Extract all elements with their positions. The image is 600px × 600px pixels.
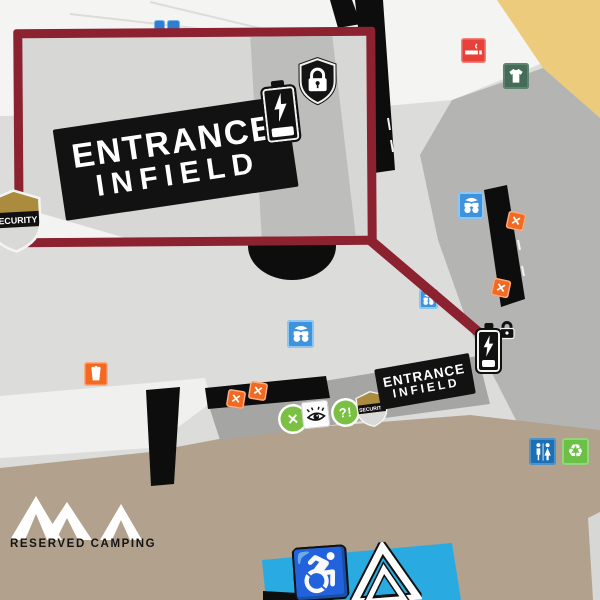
lightning-bolt-glyph — [267, 90, 293, 124]
gate-charging-lockers — [473, 318, 521, 378]
x-glyph: ✕ — [230, 391, 242, 406]
binoculars-glyph — [421, 292, 436, 307]
charging-station-icon — [475, 328, 502, 374]
binoculars-glyph — [290, 323, 312, 345]
recycling-icon: ♻ — [562, 438, 589, 465]
restroom-figures-glyph — [532, 441, 554, 463]
reserved-camping-label: RESERVED CAMPING — [10, 538, 156, 550]
food-vendor-icon: ✕ — [505, 210, 526, 231]
cigarette-glyph — [463, 40, 484, 61]
lockers-shield-icon — [296, 57, 338, 105]
callout-box: ENTRANCE INFIELD — [13, 27, 377, 248]
beer-stand-icon — [84, 362, 108, 386]
wheelchair-glyph: ♿ — [290, 545, 351, 600]
charging-station-icon-large — [260, 84, 302, 146]
security-shield: SECURITY — [0, 186, 58, 256]
recycle-glyph: ♻ — [567, 441, 583, 462]
viewing-point-icon-small — [419, 289, 438, 309]
x-glyph: ✕ — [510, 213, 523, 229]
food-vendor-icon: ✕ — [248, 381, 269, 402]
lost-and-found-eye-icon — [301, 400, 331, 430]
battery-bar — [482, 360, 495, 367]
merch-tshirt-icon — [503, 63, 529, 89]
security-badge-large: SECURITY — [0, 186, 58, 256]
festival-map: ✕ ✕ ✕ ✕ ✕ — [0, 0, 600, 600]
battery-bar — [271, 126, 294, 137]
accessible-camping-tent-icon — [346, 540, 422, 600]
food-vendor-icon: ✕ — [226, 389, 247, 410]
food-vendor-icon: ✕ — [490, 277, 511, 298]
binoculars-glyph — [461, 195, 482, 216]
lightning-bolt-glyph — [480, 334, 497, 358]
x-glyph: ✕ — [495, 280, 508, 296]
help-glyph: ?! — [338, 404, 353, 420]
x-glyph: ✕ — [286, 410, 299, 428]
x-glyph: ✕ — [252, 383, 264, 398]
smoking-area-icon — [461, 38, 486, 63]
wheelchair-icon: ♿ — [290, 544, 351, 600]
restroom-icon — [529, 438, 556, 465]
tshirt-glyph — [506, 66, 526, 86]
viewing-point-icon — [287, 320, 314, 348]
camping-tents-icon — [8, 490, 143, 542]
eye-glyph — [303, 402, 327, 426]
viewing-point-icon — [458, 192, 484, 219]
beer-cup-glyph — [87, 365, 105, 383]
